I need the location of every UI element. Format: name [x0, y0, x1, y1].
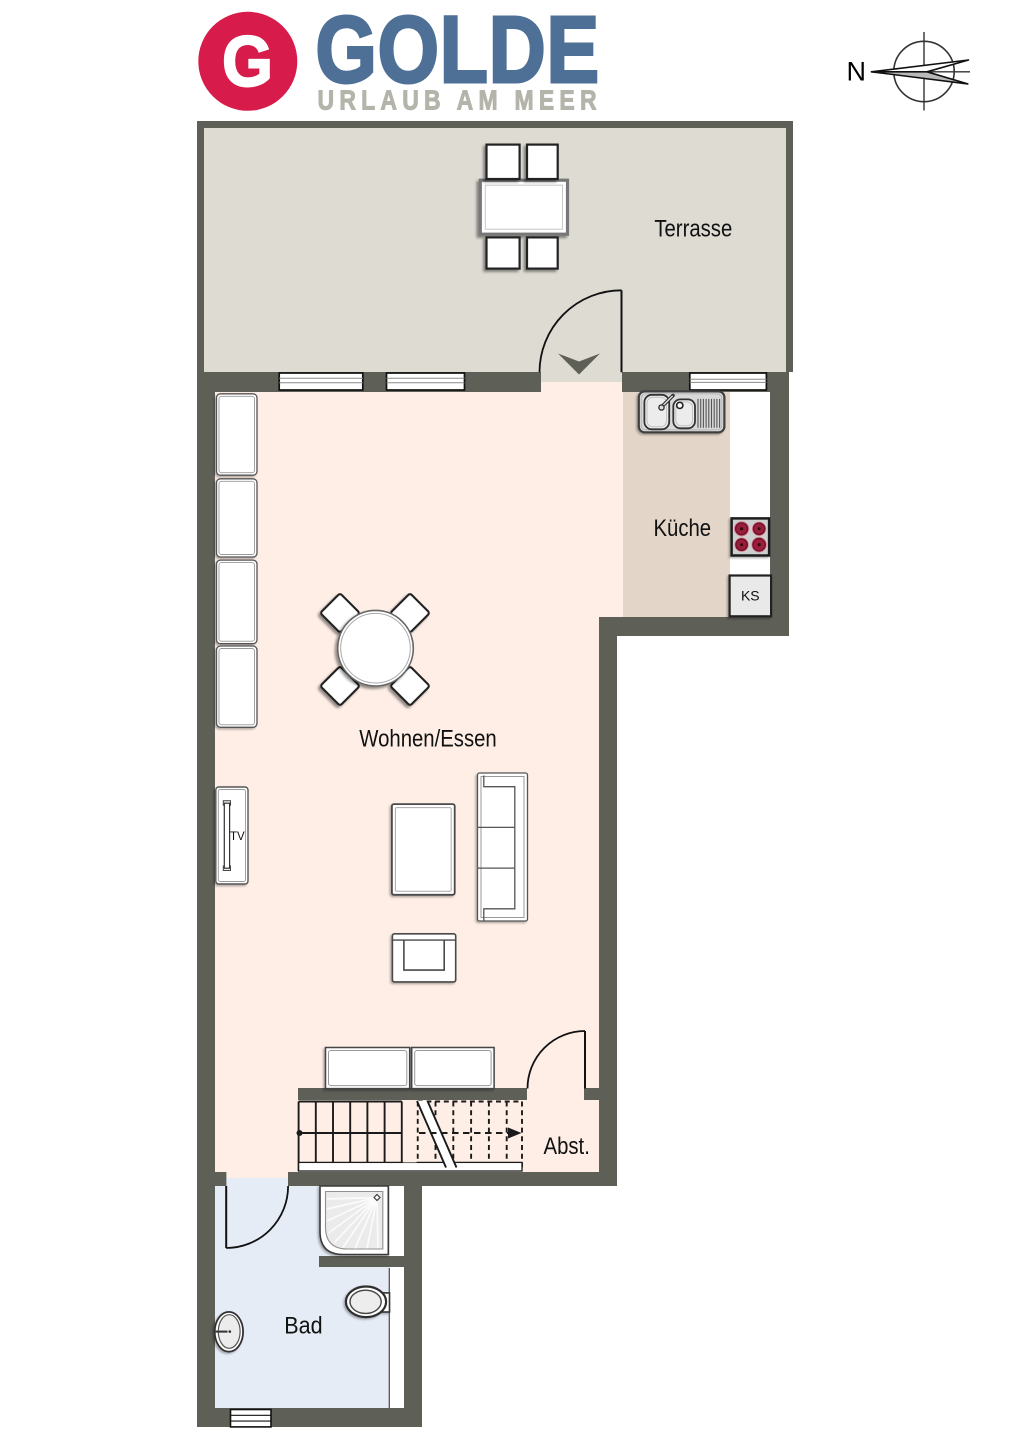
svg-text:Terrasse: Terrasse — [654, 215, 732, 242]
svg-text:Wohnen/Essen: Wohnen/Essen — [359, 725, 496, 752]
svg-text:G: G — [222, 23, 273, 102]
svg-text:URLAUB AM MEER: URLAUB AM MEER — [318, 85, 602, 116]
svg-text:N: N — [847, 57, 867, 87]
svg-text:Bad: Bad — [284, 1311, 322, 1339]
svg-text:TV: TV — [230, 831, 245, 843]
svg-text:Küche: Küche — [653, 514, 711, 541]
svg-text:KS: KS — [741, 588, 760, 604]
svg-text:Abst.: Abst. — [544, 1132, 590, 1159]
